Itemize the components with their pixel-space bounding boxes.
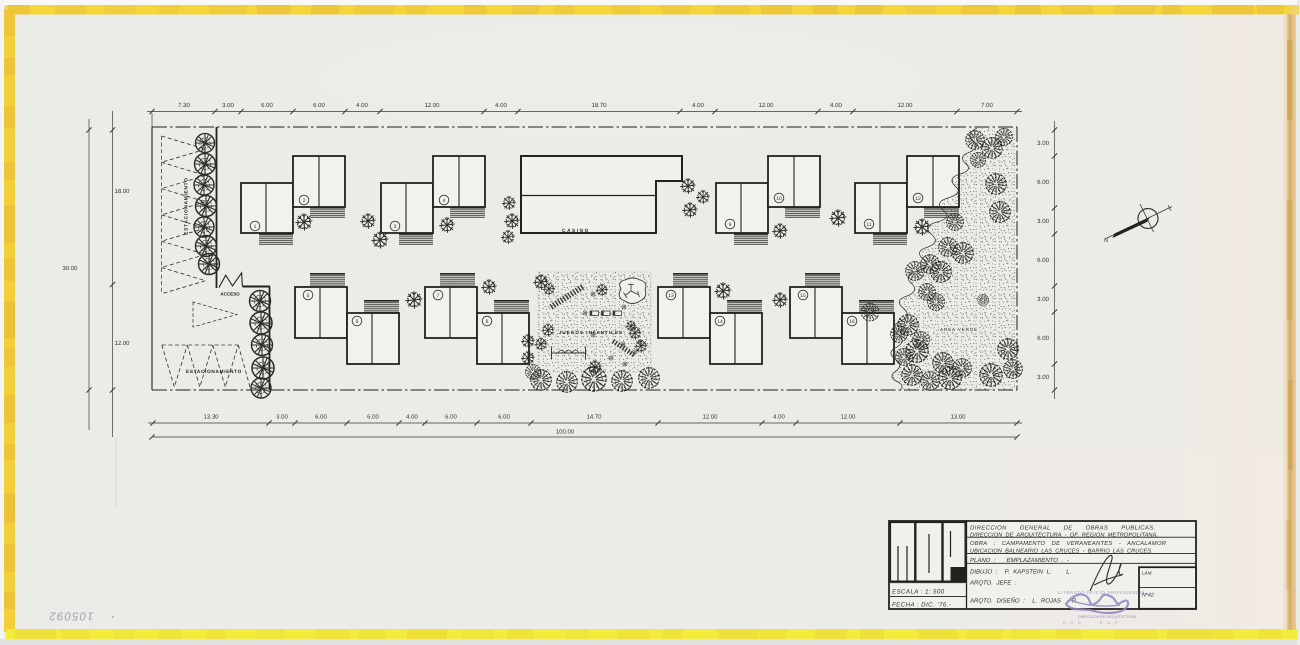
svg-text:AREA VERDE: AREA VERDE	[940, 327, 978, 332]
svg-text:4.00: 4.00	[773, 414, 785, 421]
svg-text:4.00: 4.00	[406, 414, 418, 421]
svg-text:3.00: 3.00	[1037, 218, 1049, 225]
svg-text:PLANO : EMPLAZAMIENTO . -: PLANO : EMPLAZAMIENTO . -	[970, 557, 1069, 564]
svg-text:14.70: 14.70	[586, 414, 602, 421]
svg-text:OBRA : CAMPAMENTO DE VERANEANT: OBRA : CAMPAMENTO DE VERANEANTES - ANCAL…	[970, 540, 1167, 547]
svg-text:2: 2	[303, 198, 306, 204]
svg-text:3.00: 3.00	[1037, 296, 1049, 303]
svg-text:6.00: 6.00	[445, 414, 457, 421]
svg-text:12.00: 12.00	[840, 414, 856, 421]
svg-text:9: 9	[729, 222, 732, 228]
svg-text:CASINO: CASINO	[562, 228, 590, 233]
svg-text:6.00: 6.00	[367, 414, 379, 421]
svg-text:12.00: 12.00	[758, 102, 774, 109]
svg-text:ESCALA : 1: 500: ESCALA : 1: 500	[892, 589, 945, 596]
svg-text:30.00: 30.00	[62, 265, 78, 272]
svg-text:DIBUJO : P. KAPSTEIN L. L.: DIBUJO : P. KAPSTEIN L. L.	[970, 569, 1071, 576]
svg-text:13.30: 13.30	[203, 414, 219, 421]
svg-text:4.00: 4.00	[830, 102, 842, 109]
svg-text:12.00: 12.00	[702, 414, 718, 421]
svg-text:3.00: 3.00	[276, 414, 288, 421]
svg-text:DIRECCION DE ARQUITECTURA - OF: DIRECCION DE ARQUITECTURA - OF. REGION M…	[970, 533, 1158, 539]
svg-text:10: 10	[776, 196, 782, 202]
svg-text:6.00: 6.00	[313, 102, 325, 109]
svg-text:1: 1	[254, 224, 257, 230]
svg-text:8: 8	[486, 319, 489, 325]
svg-text:6.00: 6.00	[1037, 335, 1049, 342]
svg-text:105092: 105092	[48, 610, 94, 622]
svg-text:14: 14	[717, 319, 723, 325]
svg-text:UBICACION BALNEARIO LAS CRUCES: UBICACION BALNEARIO LAS CRUCES - BARRIO …	[970, 549, 1153, 555]
svg-text:6.00: 6.00	[261, 102, 273, 109]
svg-text:6: 6	[356, 319, 359, 325]
svg-text:6.00: 6.00	[1037, 257, 1049, 264]
svg-text:ESTACIONAMIENTO: ESTACIONAMIENTO	[186, 369, 242, 374]
svg-text:12: 12	[915, 196, 921, 202]
svg-text:LAM.: LAM.	[1142, 571, 1153, 576]
svg-text:12.00: 12.00	[897, 102, 913, 109]
svg-text:4.00: 4.00	[692, 102, 704, 109]
svg-text:16: 16	[849, 319, 855, 325]
svg-text:7.00: 7.00	[981, 102, 993, 109]
svg-text:FECHA : DIC. ’76.-: FECHA : DIC. ’76.-	[892, 602, 951, 609]
svg-text:18.70: 18.70	[591, 102, 607, 109]
svg-text:4.00: 4.00	[356, 102, 368, 109]
svg-text:4.00: 4.00	[495, 102, 507, 109]
svg-text:3.00: 3.00	[222, 102, 234, 109]
svg-text:5: 5	[307, 293, 310, 299]
svg-text:ACCESO: ACCESO	[220, 292, 240, 297]
svg-text:N: N	[1104, 238, 1108, 244]
svg-text:3.00: 3.00	[1037, 140, 1049, 147]
svg-text:E. G. R. R. O. P.: E. G. R. R. O. P.	[1063, 621, 1120, 625]
svg-text:12.00: 12.00	[114, 340, 130, 347]
svg-text:JUEGOS INFANTILES: JUEGOS INFANTILES	[559, 330, 623, 335]
svg-text:DIRECCION GENERAL DE OBRAS PUB: DIRECCION GENERAL DE OBRAS PUBLICAS.	[970, 525, 1156, 532]
svg-text:DIRECCION DE ARQUITECTURA: DIRECCION DE ARQUITECTURA	[1078, 615, 1137, 619]
svg-text:6.00: 6.00	[1037, 179, 1049, 186]
svg-text:13.00: 13.00	[950, 414, 966, 421]
svg-text:7.30: 7.30	[178, 102, 190, 109]
svg-text:ESTACIONAMIENTO: ESTACIONAMIENTO	[184, 177, 189, 234]
svg-text:4: 4	[443, 198, 446, 204]
svg-text:100.00: 100.00	[556, 429, 575, 436]
svg-text:15: 15	[800, 293, 806, 299]
svg-text:13: 13	[668, 293, 674, 299]
svg-text:3.00: 3.00	[1037, 374, 1049, 381]
svg-text:18.00: 18.00	[114, 188, 130, 195]
svg-text:ARQTO. DISEÑO : L. ROJAS P.: ARQTO. DISEÑO : L. ROJAS P.	[969, 597, 1077, 605]
svg-text:7: 7	[437, 293, 440, 299]
svg-text:12.00: 12.00	[424, 102, 440, 109]
svg-text:LITERATO OFICIO PROVIDENCIA: LITERATO OFICIO PROVIDENCIA	[1058, 590, 1145, 595]
svg-text:3: 3	[394, 224, 397, 230]
svg-text:6.00: 6.00	[315, 414, 327, 421]
svg-text:11: 11	[866, 222, 871, 228]
svg-text:6.00: 6.00	[498, 414, 510, 421]
svg-text:ARQTO. JEFE :: ARQTO. JEFE :	[969, 580, 1017, 587]
